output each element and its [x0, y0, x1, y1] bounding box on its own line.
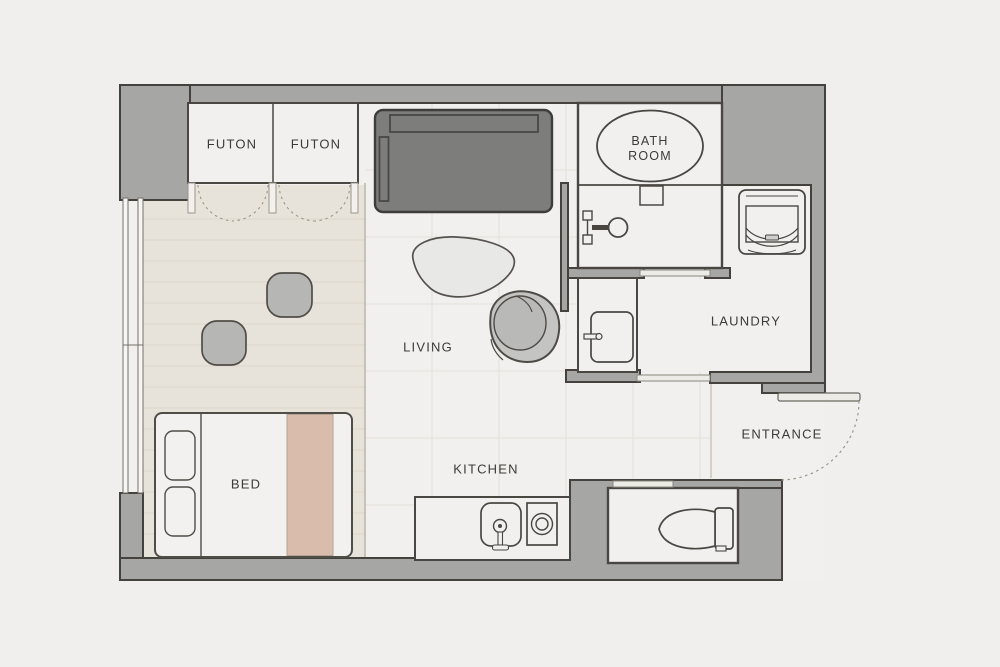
room-label-futon-right: FUTON	[291, 137, 342, 152]
room-label-bathroom: BATH ROOM	[628, 134, 672, 164]
sofa-icon	[375, 110, 552, 212]
room-label-kitchen: KITCHEN	[453, 462, 518, 477]
laundry-sliding-door-icon	[637, 375, 710, 381]
room-label-bathroom-line2: ROOM	[628, 149, 672, 164]
pillow-icon	[165, 487, 195, 536]
wall-top	[190, 85, 722, 103]
wall-top-left-block	[120, 85, 190, 200]
bed-blanket	[287, 415, 333, 556]
pillow-icon	[165, 431, 195, 480]
bathroom-room	[578, 103, 722, 268]
floorplan-canvas: FUTON FUTON BATH ROOM LAUNDRY LIVING ENT…	[0, 0, 1000, 667]
washroom-sliding-door-icon	[640, 270, 710, 276]
kitchen-counter	[415, 497, 570, 560]
toilet-sliding-door-icon	[613, 481, 673, 487]
floor-cushion-icon	[267, 273, 312, 317]
room-label-entrance: ENTRANCE	[741, 427, 822, 442]
kitchen-sink-icon	[481, 503, 521, 550]
room-label-laundry: LAUNDRY	[711, 314, 781, 329]
stove-burner-icon	[527, 503, 557, 545]
wall-washroom-bottom	[562, 268, 644, 278]
wall-toilet-top	[672, 480, 782, 488]
room-label-futon-left: FUTON	[207, 137, 258, 152]
washroom-sliding-door-panel	[561, 183, 568, 311]
armchair-icon	[490, 291, 559, 362]
room-label-bed: BED	[231, 477, 261, 492]
floorplan-drawing	[0, 0, 1000, 667]
floor-cushion-icon	[202, 321, 246, 365]
room-label-bathroom-line1: BATH	[628, 134, 672, 149]
washroom-sink-room	[578, 278, 637, 372]
vanity-sink-icon	[584, 312, 633, 362]
toilet-room	[608, 488, 738, 563]
washing-machine-icon	[739, 190, 805, 254]
room-label-living: LIVING	[403, 340, 453, 355]
